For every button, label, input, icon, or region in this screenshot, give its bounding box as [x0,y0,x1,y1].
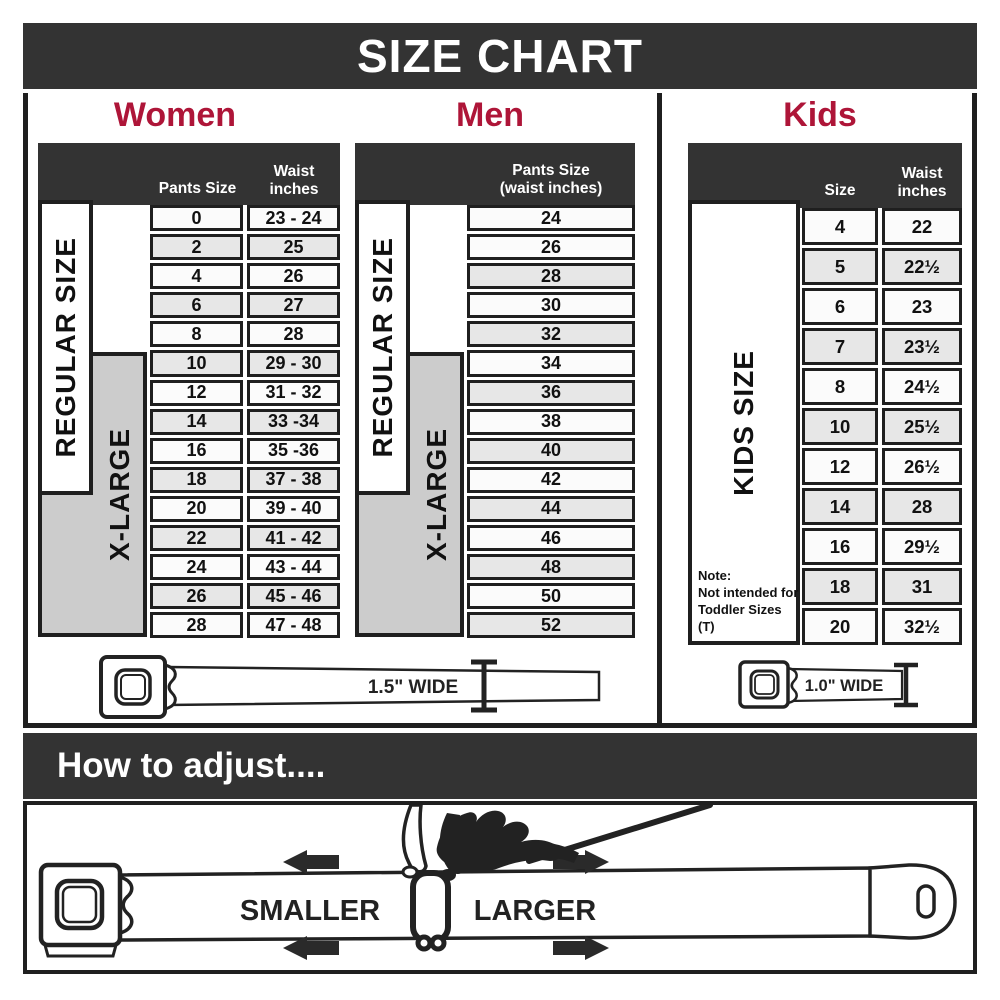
waist-cell: 48 [467,554,635,580]
table-row: 8 24½ [802,368,962,405]
women-table-rows: 0 23 - 24 2 25 4 26 6 27 [150,205,340,638]
table-row: 20 32½ [802,608,962,645]
toddler-note: Note: Not intended for Toddler Sizes (T) [698,568,800,636]
men-table-rows: 24 26 28 30 32 34 [467,205,635,638]
waist-cell: 29 - 30 [247,350,340,376]
table-row: 8 28 [150,321,340,347]
waist-cell: 28 [247,321,340,347]
waist-cell: 39 - 40 [247,496,340,522]
waist-cell: 26 [467,234,635,260]
table-row: 30 [467,292,635,318]
men-heading: Men [375,96,605,135]
waist-cell: 31 - 32 [247,380,340,406]
waist-inches-header: Waist inches [248,163,340,200]
waist-cell: 26 [247,263,340,289]
waist-cell: 24 [467,205,635,231]
adult-belt-width-label: 1.5" WIDE [368,677,458,698]
size-cell: 28 [150,612,243,638]
women-heading: Women [60,96,290,135]
waist-cell: 25 [247,234,340,260]
kids-size-table: Size Waist inches KIDS SIZE Note: Not in… [688,143,962,645]
adult-belt-illustration: 1.5" WIDE [83,648,603,728]
table-row: 7 23½ [802,328,962,365]
waist-cell: 29½ [882,528,962,565]
table-row: 12 31 - 32 [150,380,340,406]
table-row: 6 27 [150,292,340,318]
table-row: 14 28 [802,488,962,525]
waist-cell: 30 [467,292,635,318]
larger-label: LARGER [474,895,597,927]
table-row: 4 22 [802,208,962,245]
waist-cell: 46 [467,525,635,551]
kids-table-rows: 4 22 5 22½ 6 23 7 23½ [802,208,962,645]
table-row: 44 [467,496,635,522]
table-row: 12 26½ [802,448,962,485]
size-cell: 20 [150,496,243,522]
table-row: 40 [467,438,635,464]
waist-cell: 40 [467,438,635,464]
finger-outline [403,805,426,872]
kids-heading: Kids [705,96,935,135]
arrow-right-bottom-icon [553,936,609,960]
table-row: 0 23 - 24 [150,205,340,231]
table-row: 10 25½ [802,408,962,445]
size-cell: 2 [150,234,243,260]
table-row: 38 [467,409,635,435]
arrow-left-top-icon [283,850,339,874]
table-row: 50 [467,583,635,609]
waist-cell: 34 [467,350,635,376]
table-row: 26 [467,234,635,260]
men-table-header: Pants Size (waist inches) [355,143,635,205]
how-to-adjust-heading: How to adjust.... [57,746,325,786]
size-cell: 4 [150,263,243,289]
size-cell: 7 [802,328,878,365]
waist-cell: 27 [247,292,340,318]
table-row: 28 [467,263,635,289]
women-size-table: Pants Size Waist inches REGULAR SIZE X-L… [38,143,340,640]
table-row: 4 26 [150,263,340,289]
table-row: 34 [467,350,635,376]
waist-cell: 32½ [882,608,962,645]
waist-cell: 26½ [882,448,962,485]
kids-table-header: Size Waist inches [688,143,962,208]
belt-adjuster [413,873,448,941]
waist-cell: 36 [467,380,635,406]
waist-cell: 37 - 38 [247,467,340,493]
size-cell: 16 [802,528,878,565]
waist-cell: 43 - 44 [247,554,340,580]
belt-tip [870,865,955,938]
panel-border-left [23,93,28,728]
waist-cell: 22 [882,208,962,245]
size-cell: 22 [150,525,243,551]
waist-cell: 23 - 24 [247,205,340,231]
size-cell: 8 [150,321,243,347]
waist-cell: 41 - 42 [247,525,340,551]
waist-cell: 22½ [882,248,962,285]
table-row: 22 41 - 42 [150,525,340,551]
waist-cell: 44 [467,496,635,522]
waist-cell: 28 [882,488,962,525]
size-cell: 26 [150,583,243,609]
size-cell: 14 [802,488,878,525]
table-row: 28 47 - 48 [150,612,340,638]
pants-size-waist-header: Pants Size (waist inches) [467,162,635,199]
regular-range-box: REGULAR SIZE [38,200,93,495]
size-cell: 16 [150,438,243,464]
adjust-illustration-panel: SMALLER LARGER [23,801,977,974]
title-bar: SIZE CHART [23,23,977,89]
regular-range-box: REGULAR SIZE [355,200,410,495]
table-row: 26 45 - 46 [150,583,340,609]
table-row: 46 [467,525,635,551]
table-row: 24 [467,205,635,231]
waist-cell: 50 [467,583,635,609]
waist-cell: 42 [467,467,635,493]
kids-belt-illustration: 1.0" WIDE [728,651,928,713]
smaller-label: SMALLER [240,895,380,927]
waist-cell: 45 - 46 [247,583,340,609]
panel-border-right [972,93,977,728]
size-cell: 4 [802,208,878,245]
waist-cell: 25½ [882,408,962,445]
table-row: 20 39 - 40 [150,496,340,522]
size-cell: 10 [150,350,243,376]
waist-cell: 35 -36 [247,438,340,464]
size-header: Size [802,182,878,201]
size-cell: 18 [150,467,243,493]
xlarge-size-label: X-LARGE [410,352,464,637]
regular-size-label: REGULAR SIZE [50,237,82,457]
table-row: 52 [467,612,635,638]
table-row: 36 [467,380,635,406]
size-cell: 5 [802,248,878,285]
table-row: 42 [467,467,635,493]
size-cell: 6 [150,292,243,318]
table-row: 32 [467,321,635,347]
regular-size-label: REGULAR SIZE [367,237,399,457]
size-cell: 24 [150,554,243,580]
waist-cell: 32 [467,321,635,347]
how-to-adjust-bar: How to adjust.... [23,733,977,799]
table-row: 24 43 - 44 [150,554,340,580]
table-row: 18 37 - 38 [150,467,340,493]
adjust-illustration: SMALLER LARGER [27,805,973,970]
size-cell: 8 [802,368,878,405]
xlarge-size-label: X-LARGE [93,352,147,637]
size-cell: 6 [802,288,878,325]
table-row: 6 23 [802,288,962,325]
waist-inches-header: Waist inches [882,165,962,202]
page-title: SIZE CHART [357,29,643,83]
women-table-header: Pants Size Waist inches [38,143,340,205]
waist-cell: 24½ [882,368,962,405]
pants-size-header: Pants Size [150,180,245,199]
size-cell: 20 [802,608,878,645]
kids-size-label: KIDS SIZE [728,350,760,496]
waist-cell: 23 [882,288,962,325]
waist-cell: 28 [467,263,635,289]
table-row: 10 29 - 30 [150,350,340,376]
waist-cell: 38 [467,409,635,435]
size-cell: 14 [150,409,243,435]
waist-cell: 52 [467,612,635,638]
size-cell: 12 [150,380,243,406]
belt-tip-slot [918,886,934,917]
kids-belt-width-label: 1.0" WIDE [805,677,883,695]
table-row: 48 [467,554,635,580]
men-size-table: Pants Size (waist inches) REGULAR SIZE X… [355,143,635,640]
kids-range-box: KIDS SIZE Note: Not intended for Toddler… [688,200,800,645]
waist-cell: 47 - 48 [247,612,340,638]
waist-cell: 33 -34 [247,409,340,435]
size-chart-page: SIZE CHART Women Men Kids Pants Size Wai… [0,0,1000,1000]
table-row: 5 22½ [802,248,962,285]
table-row: 14 33 -34 [150,409,340,435]
panel-divider [657,93,662,723]
size-cell: 18 [802,568,878,605]
waist-cell: 31 [882,568,962,605]
table-row: 16 29½ [802,528,962,565]
size-cell: 12 [802,448,878,485]
table-row: 2 25 [150,234,340,260]
table-row: 16 35 -36 [150,438,340,464]
waist-cell: 23½ [882,328,962,365]
size-cell: 10 [802,408,878,445]
table-row: 18 31 [802,568,962,605]
size-cell: 0 [150,205,243,231]
